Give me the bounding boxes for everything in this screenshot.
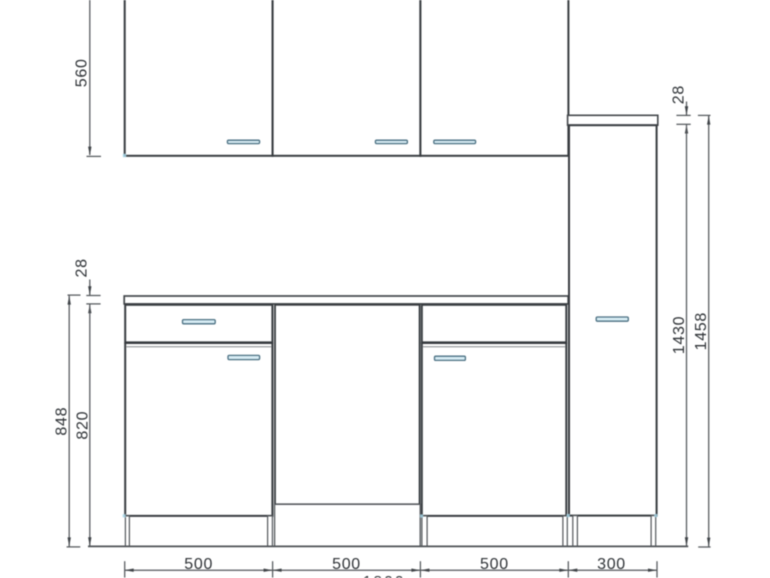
svg-text:1430: 1430 <box>671 316 688 354</box>
svg-text:848: 848 <box>54 407 71 436</box>
svg-text:1800: 1800 <box>363 574 406 578</box>
svg-text:28: 28 <box>74 258 91 277</box>
svg-text:28: 28 <box>670 85 687 104</box>
svg-text:560: 560 <box>74 58 91 87</box>
svg-text:500: 500 <box>184 556 213 573</box>
svg-text:1458: 1458 <box>693 312 710 350</box>
svg-text:820: 820 <box>74 411 91 440</box>
svg-text:500: 500 <box>480 556 509 573</box>
svg-text:300: 300 <box>597 556 626 573</box>
svg-text:500: 500 <box>332 556 361 573</box>
